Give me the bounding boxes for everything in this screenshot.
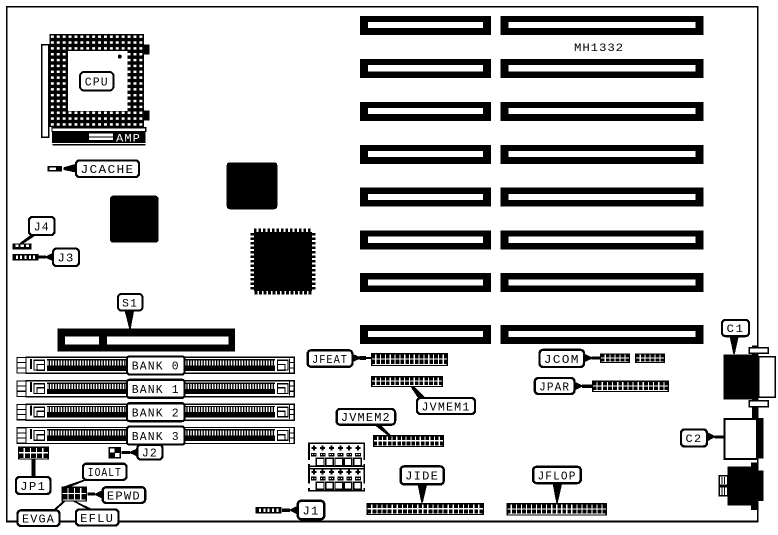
- svg-text:C1: C1: [727, 324, 745, 336]
- svg-text:JIDE: JIDE: [405, 470, 439, 484]
- svg-text:BANK 3: BANK 3: [132, 430, 180, 444]
- svg-text:BANK 0: BANK 0: [132, 360, 180, 374]
- svg-text:IOALT: IOALT: [88, 466, 122, 480]
- svg-text:JCOM: JCOM: [544, 353, 580, 367]
- svg-text:J4: J4: [34, 220, 50, 234]
- svg-text:S1: S1: [122, 298, 138, 310]
- svg-text:CPU: CPU: [85, 76, 109, 90]
- svg-text:JPAR: JPAR: [539, 380, 570, 394]
- svg-text:JVMEM2: JVMEM2: [341, 411, 391, 425]
- svg-text:AMP: AMP: [116, 133, 141, 145]
- svg-text:JFEAT: JFEAT: [312, 353, 348, 367]
- svg-text:J3: J3: [58, 252, 75, 266]
- svg-text:JP1: JP1: [20, 480, 46, 494]
- svg-text:JCACHE: JCACHE: [81, 163, 135, 177]
- svg-text:MH1332: MH1332: [574, 43, 624, 55]
- svg-text:C2: C2: [686, 434, 703, 446]
- svg-text:EFLU: EFLU: [80, 512, 114, 526]
- svg-text:EVGA: EVGA: [22, 513, 55, 527]
- svg-text:JVMEM1: JVMEM1: [422, 400, 471, 414]
- svg-text:BANK 1: BANK 1: [132, 383, 180, 397]
- svg-text:JFLOP: JFLOP: [538, 469, 577, 483]
- svg-text:J2: J2: [142, 446, 158, 460]
- svg-text:BANK 2: BANK 2: [132, 407, 180, 421]
- svg-text:J1: J1: [303, 504, 320, 518]
- svg-text:EPWD: EPWD: [107, 489, 141, 503]
